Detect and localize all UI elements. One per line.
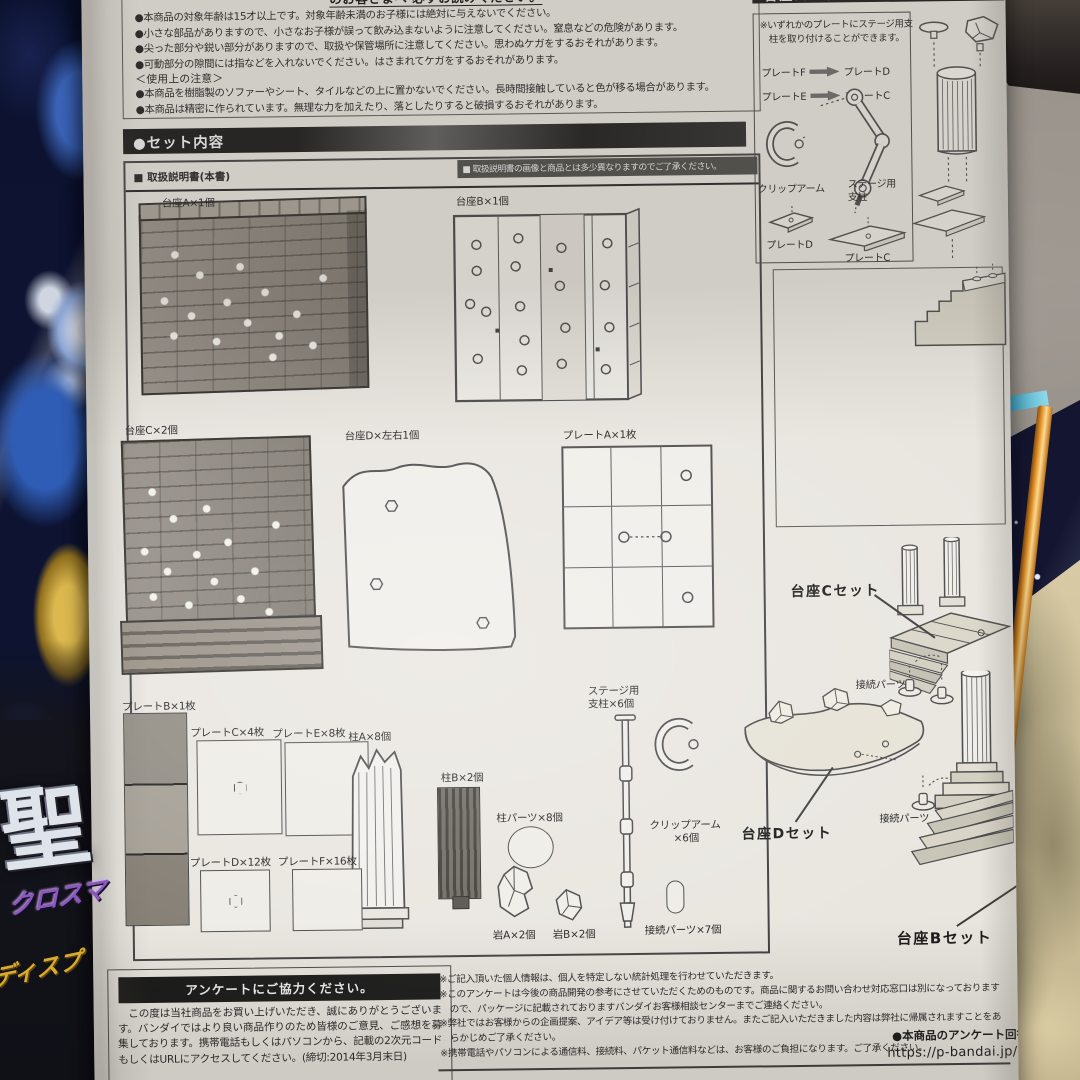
part-label-pillar-b: 柱B×2個 bbox=[441, 770, 484, 786]
survey-url: https://p-bandai.jp/ bbox=[887, 1044, 1017, 1061]
plate-a-diagram bbox=[561, 444, 715, 630]
box-gold-text: ディスプ bbox=[0, 940, 82, 993]
plate-c-diagram bbox=[196, 739, 282, 835]
stage-guide-box: ※いずれかのプレートにステージ用支柱を取り付けることができます。 プレートFプレ… bbox=[753, 12, 914, 264]
plate-d-icon bbox=[764, 206, 818, 235]
daiza-c-diagram bbox=[121, 435, 318, 673]
daiza-b-diagram bbox=[452, 207, 644, 405]
clip-arm-diagram bbox=[646, 714, 701, 777]
part-label-pillar-parts: 柱パーツ×8個 bbox=[496, 810, 563, 826]
stage-guide-note: ※いずれかのプレートにステージ用支柱を取り付けることができます。 bbox=[760, 18, 915, 47]
photo-scene: 聖 クロスマ ディスプ のお客さまへ 必ずお読みください。 ●本商品の対象年齢は… bbox=[0, 0, 1080, 1080]
part-label-plate-e: プレートE×8枚 bbox=[272, 726, 345, 742]
hex-hole bbox=[233, 781, 246, 794]
part-label-rock-a: 岩A×2個 bbox=[493, 927, 536, 943]
connector-label-2: 接続パーツ bbox=[879, 809, 929, 825]
daiza-d-set-diagram bbox=[735, 681, 931, 801]
part-label-plate-a: プレートA×1枚 bbox=[563, 427, 637, 443]
part-label-connector: 接続パーツ×7個 bbox=[645, 922, 722, 938]
plate-c-label: プレートC bbox=[844, 249, 890, 265]
part-label-pillar-a: 柱A×8個 bbox=[348, 729, 391, 745]
instruction-sheet: のお客さまへ 必ずお読みください。 ●本商品の対象年齢は15才以上です。対象年齢… bbox=[81, 0, 1019, 1080]
set-contents-header: ●セット内容 bbox=[123, 122, 746, 155]
part-label-plate-c: プレートC×4枚 bbox=[190, 725, 264, 741]
plate-mapping-row: プレートFプレートD bbox=[761, 63, 890, 80]
part-label-daiza-b: 台座B×1個 bbox=[456, 193, 509, 209]
stage-guide-header: 台座パーツとステージ支柱 bbox=[752, 0, 1004, 3]
plate-c-icon bbox=[824, 217, 910, 252]
plate-b-diagram bbox=[123, 712, 190, 926]
survey-header: アンケートにご協力ください。 bbox=[118, 973, 440, 1003]
daiza-d-diagram bbox=[333, 440, 528, 658]
part-label-plate-b: プレートB×1枚 bbox=[122, 698, 196, 714]
panel-note: ■ 取扱説明書の画像と商品とは多少異なりますのでご了承ください。 bbox=[457, 156, 757, 178]
hex-hole bbox=[229, 895, 242, 908]
clip-arm-icon bbox=[759, 118, 806, 171]
connector-diagram bbox=[666, 880, 684, 913]
pillar-b-diagram bbox=[437, 787, 481, 900]
part-label-plate-f: プレートF×16枚 bbox=[278, 853, 357, 869]
rock-b-diagram bbox=[554, 888, 584, 922]
survey-answer-label: ●本商品のアンケート回答 bbox=[892, 1026, 1019, 1044]
part-label-rock-b: 岩B×2個 bbox=[553, 926, 596, 942]
part-label-daiza-d: 台座D×左右1個 bbox=[345, 428, 420, 444]
survey-body: この度は当社商品をお買い上げいただき、誠にありがとうございます。バンダイではより… bbox=[118, 1003, 443, 1068]
part-label-clip-arm: クリップアーム ×6個 bbox=[649, 819, 720, 846]
part-label-daiza-a: 台座A×1個 bbox=[162, 195, 215, 211]
daiza-b-set-diagram bbox=[906, 670, 1015, 913]
connector-label-1: 接続パーツ bbox=[856, 676, 906, 692]
pillar-assembly-diagram bbox=[910, 14, 1008, 353]
survey-box: アンケートにご協力ください。 この度は当社商品をお買い上げいただき、誠にありがと… bbox=[107, 965, 453, 1080]
stage-pillar-diagram bbox=[608, 713, 645, 929]
warning-box: のお客さまへ 必ずお読みください。 ●本商品の対象年齢は15才以上です。対象年齢… bbox=[121, 0, 761, 119]
clip-arm-label: クリップアーム bbox=[758, 180, 825, 196]
daiza-a-diagram bbox=[139, 208, 370, 396]
arrow-right-icon bbox=[809, 66, 839, 76]
plate-f-diagram bbox=[292, 868, 363, 931]
part-label-daiza-c: 台座C×2個 bbox=[125, 423, 178, 439]
set-b-label: 台座Bセット bbox=[897, 927, 993, 949]
set-c-label: 台座Cセット bbox=[790, 580, 880, 601]
set-d-label: 台座Dセット bbox=[741, 823, 832, 844]
manual-label: ■ 取扱説明書(本書) bbox=[133, 169, 230, 185]
rock-a-diagram bbox=[494, 864, 537, 921]
divider-rule bbox=[438, 1062, 1010, 1071]
stage-pillar-label: ステージ用 支柱 bbox=[848, 179, 897, 205]
part-label-stage-pillar: ステージ用 支柱×6個 bbox=[588, 685, 640, 712]
box-logo-text: 聖 bbox=[0, 753, 95, 890]
part-label-plate-d: プレートD×12枚 bbox=[190, 854, 271, 870]
plate-d-label: プレートD bbox=[766, 236, 812, 252]
plate-d-diagram bbox=[200, 869, 271, 932]
